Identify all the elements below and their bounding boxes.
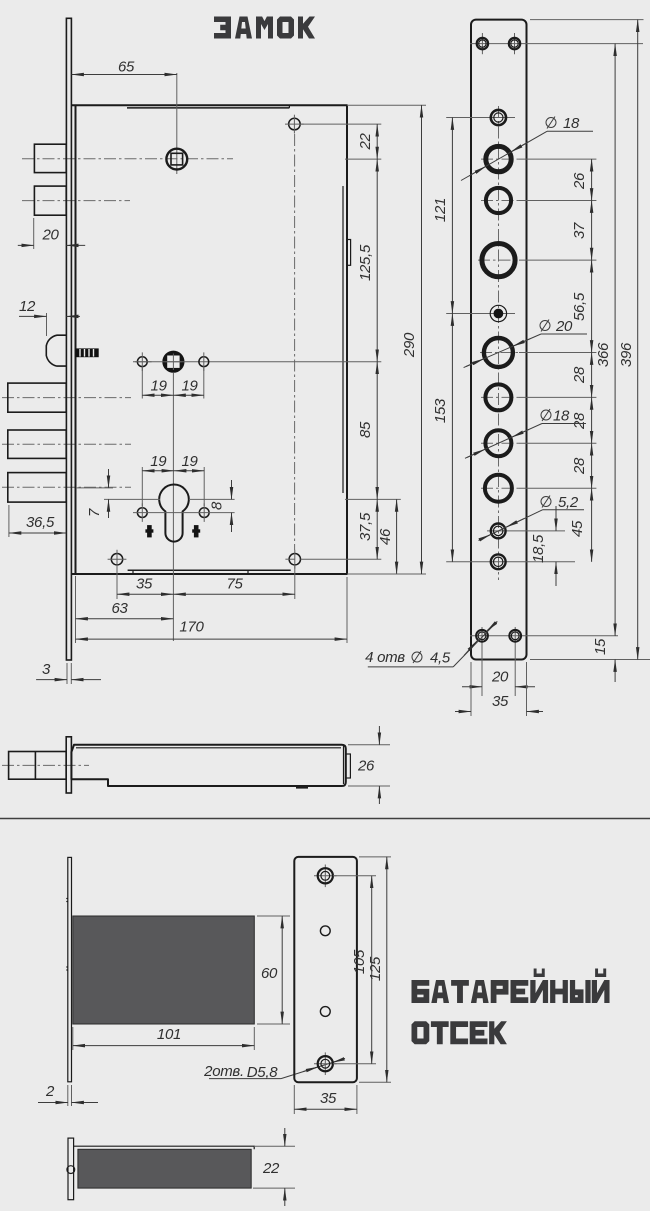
svg-text:2отв.: 2отв.	[203, 1063, 244, 1080]
svg-text:18,5: 18,5	[530, 534, 547, 563]
svg-text:28: 28	[571, 366, 588, 384]
svg-text:2: 2	[45, 1083, 55, 1100]
svg-text:56,5: 56,5	[571, 292, 588, 321]
svg-text:19: 19	[151, 378, 168, 395]
svg-text:22: 22	[262, 1160, 280, 1177]
svg-text:19: 19	[181, 378, 198, 395]
svg-text:125,5: 125,5	[357, 244, 374, 281]
svg-text:63: 63	[111, 600, 128, 617]
svg-text:105: 105	[351, 949, 368, 974]
svg-text:46: 46	[377, 528, 394, 545]
svg-text:20: 20	[491, 669, 509, 686]
svg-text:36,5: 36,5	[26, 514, 55, 531]
svg-text:4 отв: 4 отв	[365, 649, 405, 666]
svg-text:22: 22	[357, 133, 374, 151]
svg-text:4,5: 4,5	[430, 650, 451, 667]
svg-text:18: 18	[563, 115, 580, 132]
svg-text:7: 7	[86, 508, 103, 517]
svg-text:19: 19	[181, 453, 198, 470]
svg-text:15: 15	[592, 638, 609, 655]
svg-text:26: 26	[357, 758, 375, 775]
svg-text:18: 18	[553, 408, 570, 425]
svg-text:101: 101	[157, 1026, 181, 1043]
svg-text:366: 366	[595, 342, 612, 367]
svg-text:290: 290	[401, 332, 418, 358]
svg-text:5,2: 5,2	[558, 494, 579, 511]
svg-text:37: 37	[571, 222, 588, 239]
svg-text:121: 121	[432, 198, 449, 222]
svg-text:26: 26	[571, 172, 588, 190]
svg-text:60: 60	[261, 965, 278, 982]
svg-text:28: 28	[571, 412, 588, 430]
svg-text:65: 65	[118, 59, 135, 76]
svg-text:125: 125	[367, 956, 384, 981]
svg-text:28: 28	[571, 457, 588, 475]
svg-text:20: 20	[41, 227, 59, 244]
svg-text:170: 170	[179, 619, 204, 636]
svg-text:35: 35	[320, 1090, 337, 1107]
svg-text:396: 396	[618, 342, 635, 367]
svg-text:8: 8	[209, 501, 226, 510]
svg-text:75: 75	[226, 576, 243, 593]
svg-text:35: 35	[136, 576, 153, 593]
svg-text:3: 3	[42, 661, 51, 678]
svg-text:153: 153	[432, 398, 449, 423]
svg-text:85: 85	[357, 421, 374, 438]
svg-text:45: 45	[569, 520, 586, 537]
svg-text:19: 19	[150, 453, 167, 470]
svg-text:12: 12	[19, 298, 36, 315]
svg-text:20: 20	[555, 318, 573, 335]
svg-text:35: 35	[492, 693, 509, 710]
svg-text:37,5: 37,5	[357, 512, 374, 541]
